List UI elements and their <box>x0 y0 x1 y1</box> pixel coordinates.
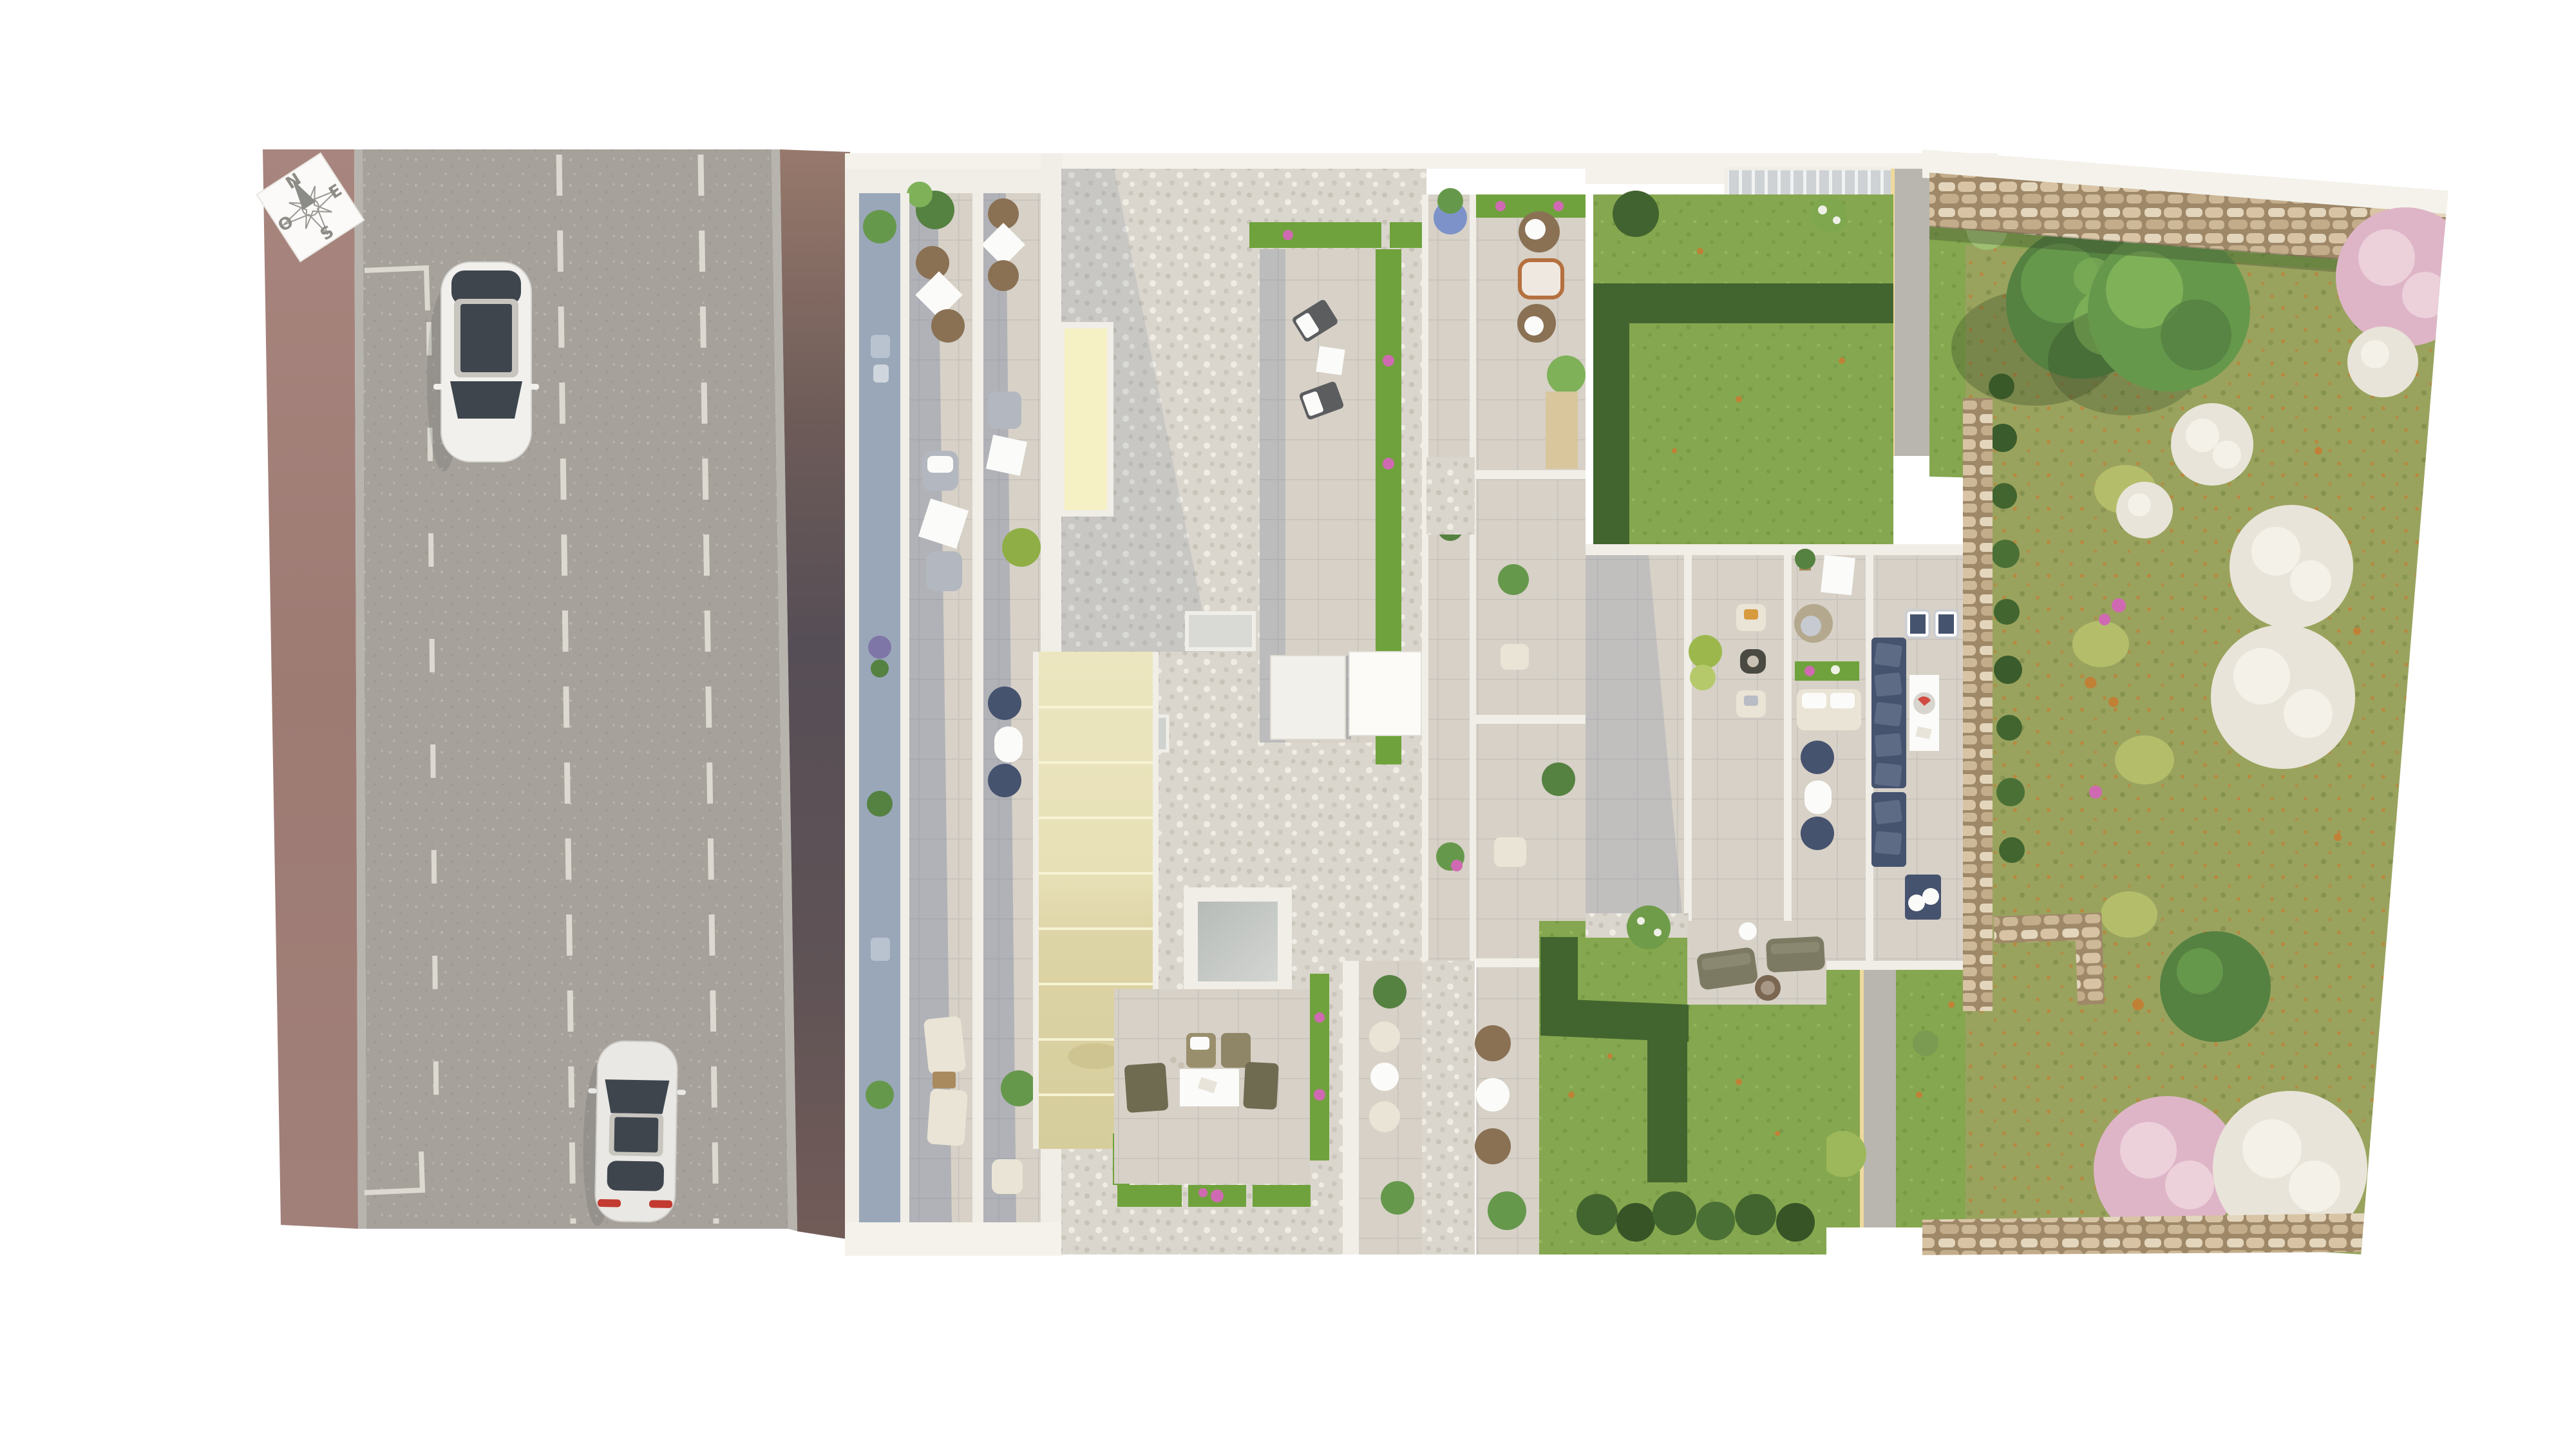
car-windshield <box>604 1079 669 1114</box>
garden-lawn-south <box>1539 905 1826 1255</box>
site-plan-rendering: N E S O <box>0 0 2576 1449</box>
site-plan-canvas: N E S O <box>0 0 2576 1449</box>
planter-box <box>1310 974 1329 1160</box>
side-table <box>1739 922 1757 940</box>
courtyard-lawn <box>1593 191 1893 554</box>
round-chair <box>931 309 965 343</box>
round-chair <box>988 687 1021 720</box>
skylight-large <box>1184 887 1292 996</box>
bush <box>1690 665 1716 690</box>
shrub <box>1001 1070 1037 1106</box>
marble-table <box>1821 555 1855 596</box>
stone-wall-east <box>1963 398 1993 1011</box>
balcony-table <box>873 365 889 383</box>
stone-wall-inner <box>2076 937 2105 1005</box>
gray-cushion <box>1744 696 1758 706</box>
skylight-yellow-strip <box>1061 325 1110 513</box>
car-sunroof <box>614 1117 658 1152</box>
car-rear-window <box>607 1160 664 1191</box>
concrete-path-north <box>1895 169 1929 456</box>
round-chair <box>1801 817 1834 850</box>
plant <box>871 659 889 677</box>
bush <box>1820 1131 1866 1177</box>
orange-cushion <box>1744 609 1758 620</box>
shrub <box>1547 355 1586 394</box>
round-chair <box>1801 741 1834 774</box>
roof-hatch-twin <box>1271 652 1421 739</box>
shrub <box>863 210 896 243</box>
terrace-column-south <box>1343 961 1422 1255</box>
shrub <box>907 182 933 207</box>
hedge-band <box>1647 1039 1687 1182</box>
shrub <box>1002 528 1041 567</box>
flower-bush <box>1627 905 1671 949</box>
bush <box>1913 1030 1938 1056</box>
bush <box>1811 197 1847 233</box>
car-taillight-left <box>598 1199 621 1207</box>
round-chair <box>916 246 949 279</box>
hedge-band <box>1593 323 1629 554</box>
round-chair <box>988 764 1021 797</box>
car-sunroof <box>460 304 512 372</box>
car-windshield <box>450 381 522 419</box>
round-chair <box>1475 1025 1511 1061</box>
round-chair <box>1369 1021 1400 1052</box>
outdoor-sofa <box>1766 936 1826 973</box>
roofline-north <box>845 153 1586 169</box>
road-asphalt <box>363 149 788 1229</box>
dining-chair <box>1221 1033 1251 1068</box>
plant <box>867 791 893 817</box>
lounge-seat <box>1243 1062 1279 1110</box>
balcony-column <box>859 193 900 1224</box>
round-table <box>1476 1078 1510 1112</box>
round-table <box>1370 1063 1399 1091</box>
potted-palm <box>1373 975 1406 1009</box>
street: N E S O <box>256 149 872 1243</box>
lounge-seat <box>1124 1063 1168 1113</box>
round-chair <box>988 260 1019 291</box>
concrete-path-south <box>1864 970 1896 1227</box>
hedge-band <box>1540 998 1689 1042</box>
armchair <box>1501 644 1529 670</box>
armchair <box>992 1159 1023 1194</box>
round-chair <box>1369 1101 1400 1132</box>
tray-table <box>933 1072 956 1088</box>
lavender-plant <box>868 636 891 659</box>
armchair <box>1494 837 1526 867</box>
oval-table <box>1804 781 1832 814</box>
sidewalk-west <box>263 149 358 1229</box>
balcony-column-east <box>1422 188 1476 961</box>
oval-table <box>994 726 1023 762</box>
car-taillight-right <box>649 1200 672 1208</box>
planter-box <box>1117 1185 1182 1207</box>
car-top <box>427 262 539 471</box>
balcony-chair <box>871 938 890 961</box>
skylight-small-1 <box>1187 613 1254 649</box>
shrub <box>1498 564 1529 595</box>
planter-box <box>1249 222 1381 248</box>
shrub <box>1381 1181 1414 1215</box>
lounger <box>927 1088 968 1146</box>
bush <box>1613 191 1659 237</box>
hedge-band <box>1593 283 1893 323</box>
side-table <box>1316 346 1345 375</box>
planter-box <box>1253 1185 1311 1207</box>
shrub <box>866 1081 894 1109</box>
pebble-bed <box>1426 457 1475 535</box>
terrace-table <box>986 435 1027 476</box>
lounger <box>923 1016 967 1075</box>
armchair <box>926 551 962 591</box>
roof-terrace-south <box>1113 974 1329 1207</box>
shrub <box>1542 762 1575 796</box>
tree-pink-north <box>2336 207 2475 397</box>
balcony-chair <box>871 335 890 358</box>
armchair <box>988 392 1021 429</box>
outdoor-rug <box>1520 260 1562 298</box>
car-bottom <box>582 1041 687 1228</box>
bush <box>1689 635 1722 668</box>
roofline-south <box>845 1222 1061 1256</box>
round-chair <box>1475 1128 1511 1164</box>
shrub <box>1488 1191 1526 1230</box>
terrace-column-1 <box>907 182 972 1224</box>
sandy-path <box>1546 392 1578 469</box>
